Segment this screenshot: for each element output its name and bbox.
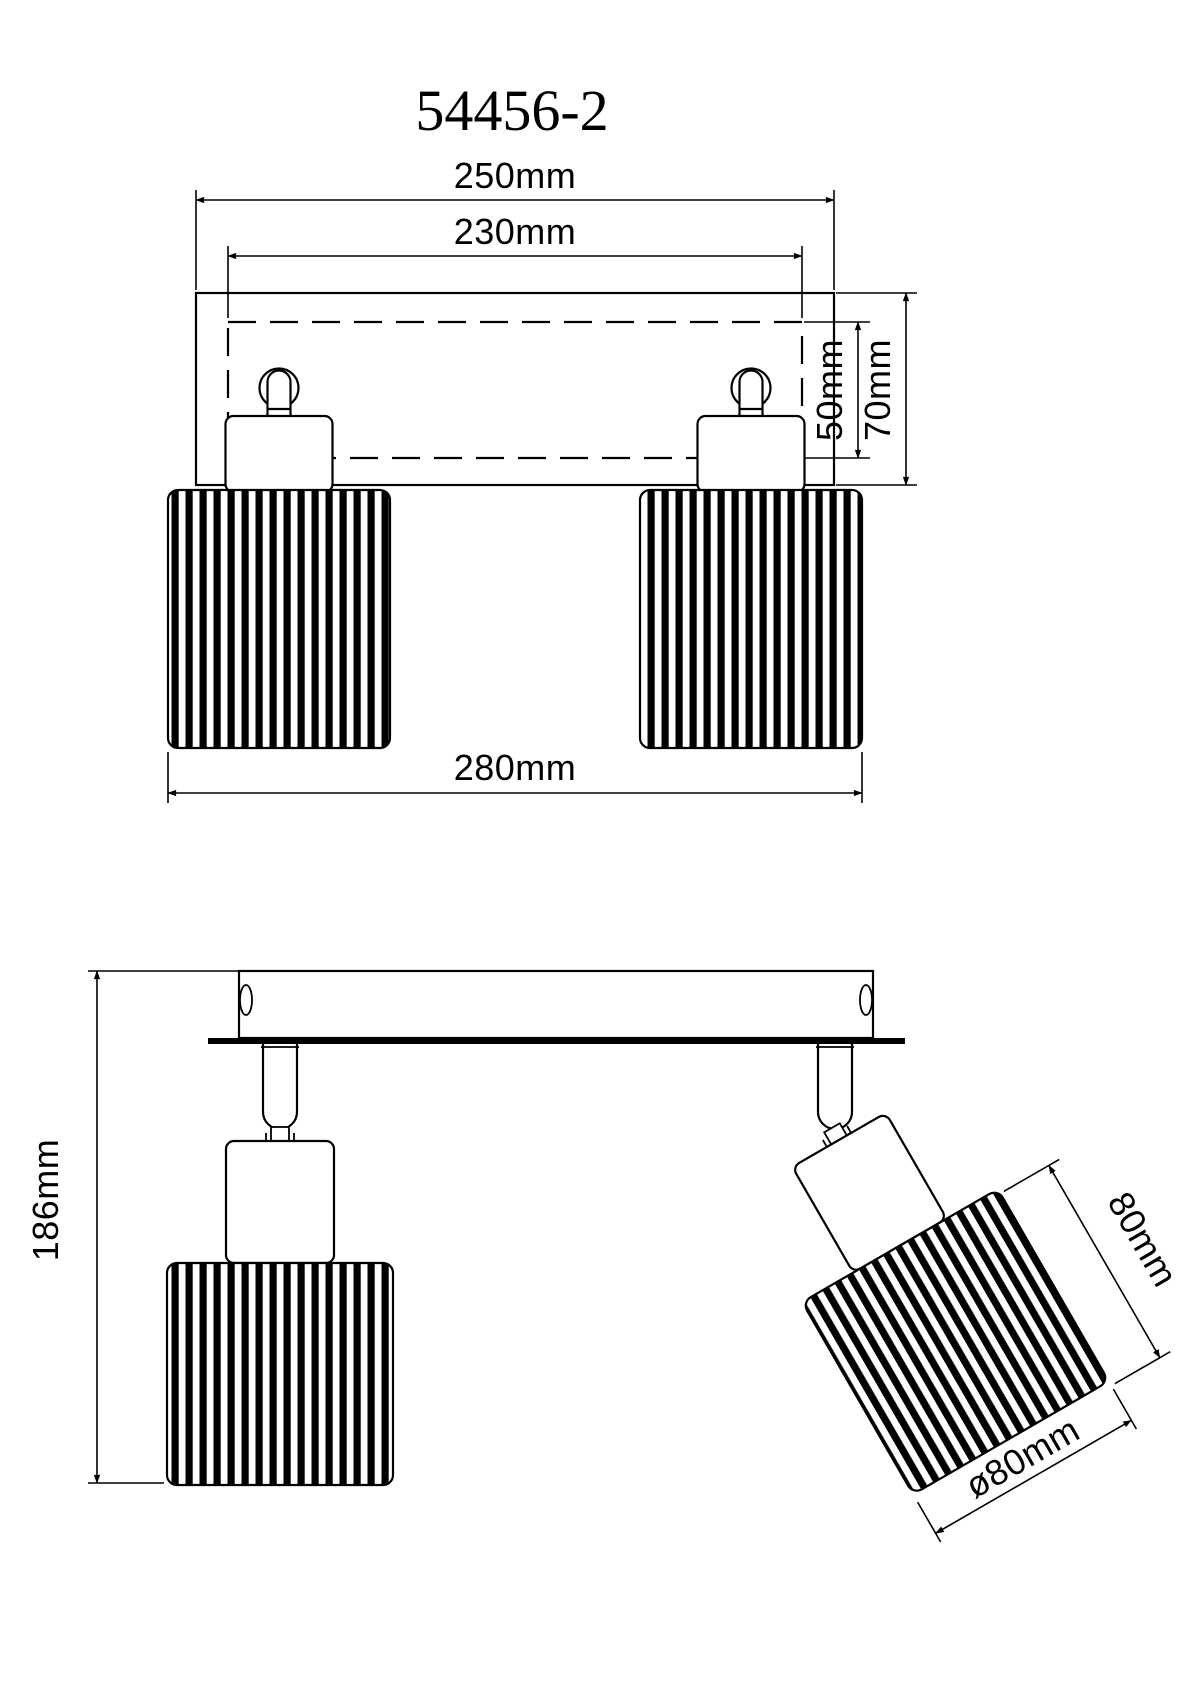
left-lamp-shade-side bbox=[167, 1263, 393, 1485]
left-drop-stem bbox=[263, 1044, 297, 1129]
left-lamp-holder-side bbox=[226, 1141, 334, 1263]
dim-70mm-label: 70mm bbox=[857, 339, 898, 441]
technical-drawing-canvas: 54456-2 bbox=[0, 0, 1200, 1699]
dim-186mm-label: 186mm bbox=[25, 1139, 66, 1262]
product-title: 54456-2 bbox=[415, 78, 608, 143]
bar-end-screw-right bbox=[860, 985, 872, 1015]
left-swivel-joint bbox=[271, 1127, 289, 1141]
dim-50mm-label: 50mm bbox=[809, 339, 850, 441]
side-left-lamp bbox=[167, 1044, 393, 1485]
drawing-page: 54456-2 bbox=[0, 0, 1200, 1699]
left-lamp-shade bbox=[168, 490, 390, 748]
left-lamp-holder bbox=[226, 416, 333, 492]
right-tilted-head: 80mm ø80mm bbox=[734, 1011, 1200, 1542]
side-view-drawing: 80mm ø80mm bbox=[167, 971, 1200, 1542]
front-view-drawing bbox=[168, 293, 862, 748]
right-drop-stem bbox=[818, 1044, 852, 1129]
ceiling-bar bbox=[239, 971, 873, 1038]
right-lamp-holder bbox=[698, 416, 805, 492]
dim-250mm-label: 250mm bbox=[454, 155, 577, 196]
bar-end-screw-left bbox=[240, 985, 252, 1015]
side-right-lamp: 80mm ø80mm bbox=[734, 1011, 1200, 1542]
right-lamp-shade bbox=[640, 490, 862, 748]
dim-280mm-label: 280mm bbox=[454, 747, 577, 788]
dim-230mm-label: 230mm bbox=[454, 211, 577, 252]
